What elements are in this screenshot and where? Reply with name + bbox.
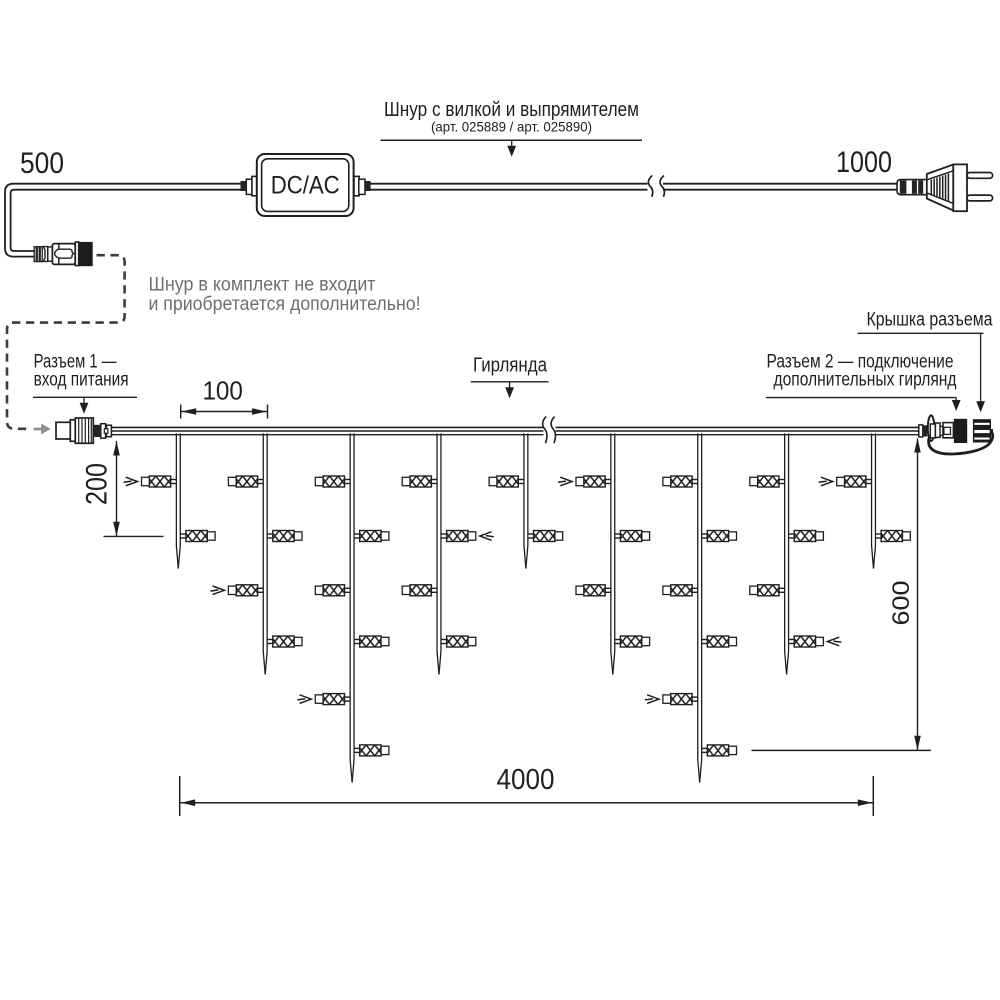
svg-text:вход питания: вход питания: [34, 369, 129, 391]
svg-text:600: 600: [888, 581, 915, 626]
svg-text:200: 200: [81, 463, 114, 505]
svg-text:Шнур в комплект не входит: Шнур в комплект не входит: [149, 273, 376, 295]
svg-text:(арт. 025889 / арт. 025890): (арт. 025889 / арт. 025890): [431, 118, 592, 134]
svg-text:500: 500: [20, 147, 64, 180]
svg-text:1000: 1000: [836, 146, 892, 179]
svg-text:Крышка разъема: Крышка разъема: [867, 309, 993, 331]
svg-text:4000: 4000: [497, 764, 555, 796]
svg-text:100: 100: [202, 375, 243, 405]
svg-text:DC/AC: DC/AC: [271, 172, 340, 200]
svg-text:дополнительных гирлянд: дополнительных гирлянд: [774, 368, 957, 390]
svg-text:Гирлянда: Гирлянда: [473, 355, 548, 377]
svg-text:и приобретается дополнительно!: и приобретается дополнительно!: [149, 293, 421, 315]
